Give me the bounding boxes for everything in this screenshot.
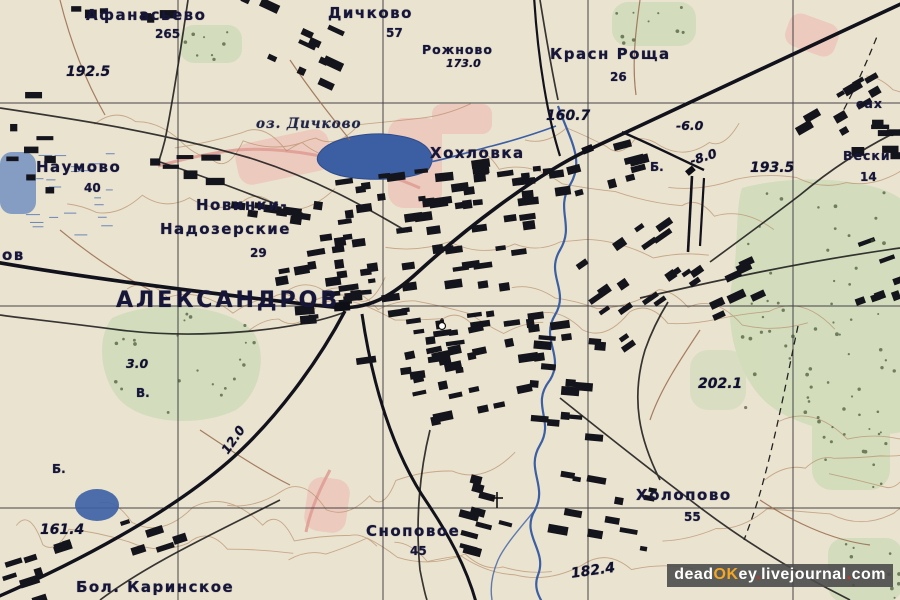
station-symbol bbox=[334, 301, 351, 311]
watermark: deadOKey.livejournal.com bbox=[667, 564, 893, 587]
watermark-text: com bbox=[852, 566, 886, 583]
watermark-text: livejournal bbox=[761, 566, 847, 583]
map-canvas bbox=[0, 0, 900, 600]
watermark-text: ey bbox=[739, 566, 757, 583]
watermark-text: dead bbox=[674, 566, 713, 583]
marsh-lake bbox=[0, 152, 36, 214]
pond bbox=[75, 489, 119, 521]
map-viewport: Афанасьево265192.5Дичково57Рожново173.0К… bbox=[0, 0, 900, 600]
watermark-text: OK bbox=[714, 566, 739, 583]
